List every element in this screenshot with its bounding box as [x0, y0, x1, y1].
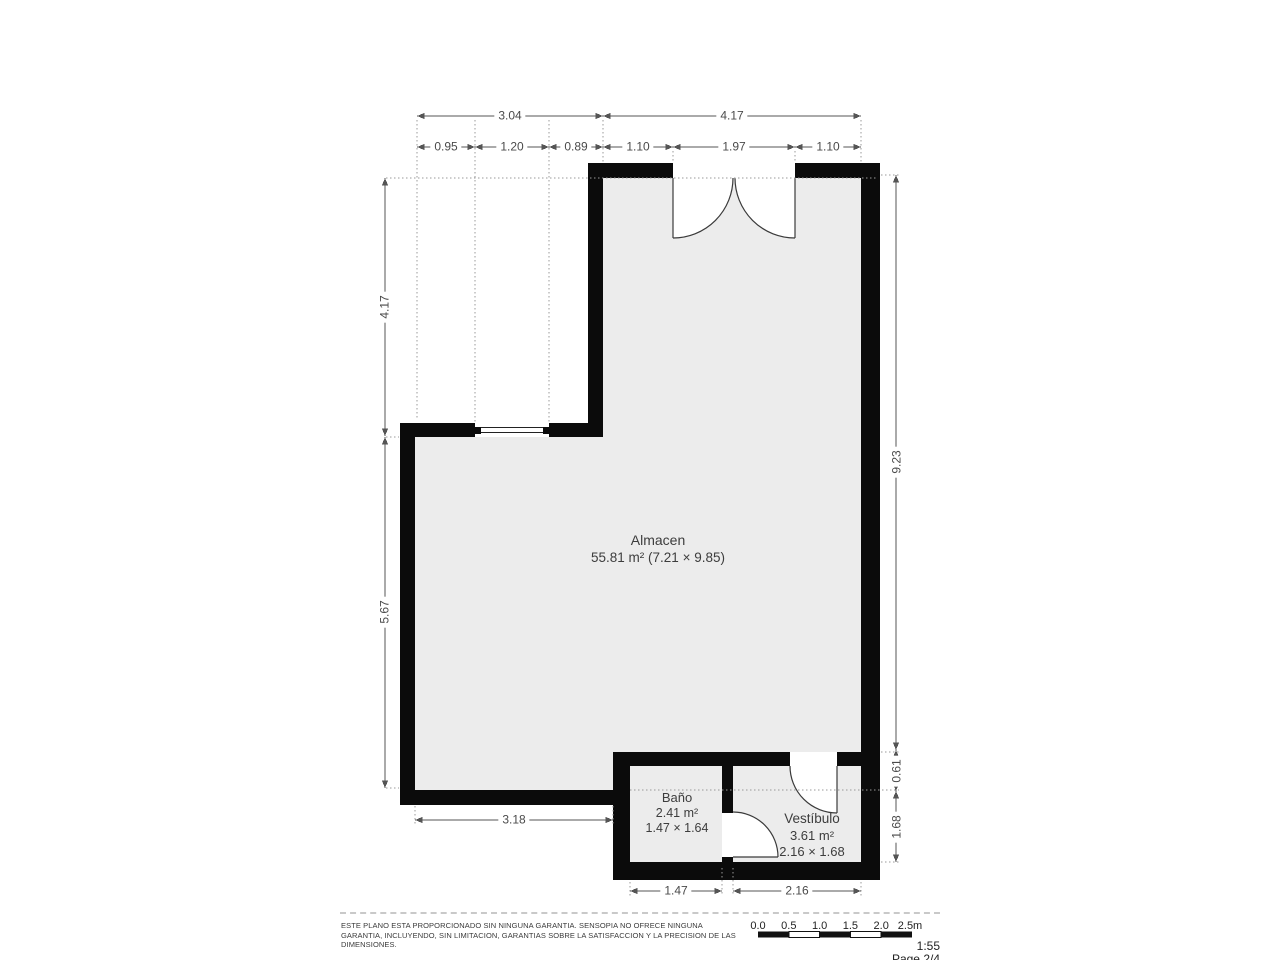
room-details: 55.81 m² (7.21 × 9.85) [591, 549, 725, 566]
dim-label-bottom-318: 3.18 [498, 814, 529, 827]
room-area: 3.61 m² [779, 828, 844, 845]
dim-label-right-061: 0.61 [891, 755, 904, 786]
disclaimer-line: GARANTIA, INCLUYENDO, SIN LIMITACION, GA… [341, 931, 741, 941]
room-label-almacen: Almacen 55.81 m² (7.21 × 9.85) [591, 532, 725, 566]
room-label-bano: Baño 2.41 m² 1.47 × 1.64 [646, 790, 709, 837]
room-label-vestibulo: Vestíbulo 3.61 m² 2.16 × 1.68 [779, 811, 844, 861]
dim-label-sub-095: 0.95 [430, 141, 461, 154]
window [475, 423, 549, 437]
wall-bano-left [613, 752, 630, 880]
room-size: 2.16 × 1.68 [779, 844, 844, 861]
wall-right [861, 163, 880, 880]
dim-label-right-168: 1.68 [891, 811, 904, 842]
dim-label-sub-110a: 1.10 [622, 141, 653, 154]
scale-ratio: 1:55 [917, 939, 940, 953]
dim-label-bottom-147: 1.47 [660, 885, 691, 898]
scale-tick-label: 1.5 [843, 920, 858, 932]
dim-label-bottom-216: 2.16 [781, 885, 812, 898]
disclaimer-line: DIMENSIONES. [341, 940, 741, 950]
disclaimer-line: ESTE PLANO ESTA PROPORCIONADO SIN NINGUN… [341, 921, 741, 931]
wall-left [400, 423, 415, 805]
dim-label-top-304: 3.04 [494, 110, 525, 123]
room-name: Vestíbulo [779, 811, 844, 828]
dim-label-sub-089: 0.89 [560, 141, 591, 154]
wall-section-top-b [837, 752, 861, 766]
dim-label-sub-110b: 1.10 [812, 141, 843, 154]
dim-label-right-923: 9.23 [891, 446, 904, 477]
room-name: Baño [646, 790, 709, 806]
wall-section-top-a [613, 752, 790, 766]
floorplan-page: 3.04 4.17 0.95 1.20 0.89 1.10 1.97 1.10 … [0, 0, 1280, 960]
disclaimer-text: ESTE PLANO ESTA PROPORCIONADO SIN NINGUN… [341, 921, 741, 950]
room-size: 1.47 × 1.64 [646, 821, 709, 837]
wall-section-bottom [613, 862, 880, 880]
scale-tick-label: 2.5m [898, 920, 922, 932]
page-indicator: Page 2/4 [892, 952, 940, 960]
dim-label-sub-197: 1.97 [718, 141, 749, 154]
wall-bano-vestibulo-stub [722, 857, 733, 862]
dim-label-left-417: 4.17 [379, 291, 392, 322]
footer-divider [340, 912, 940, 914]
wall-upper-left [588, 163, 603, 437]
room-area: 2.41 m² [646, 806, 709, 822]
dim-label-left-567: 5.67 [379, 596, 392, 627]
scale-tick-label: 2.0 [874, 920, 889, 932]
room-name: Almacen [591, 532, 725, 549]
dim-label-top-417: 4.17 [716, 110, 747, 123]
wall-bottom-left [400, 790, 630, 805]
scale-tick-label: 1.0 [812, 920, 827, 932]
scale-tick-label: 0.0 [750, 920, 765, 932]
scale-tick-label: 0.5 [781, 920, 796, 932]
dim-label-sub-120: 1.20 [496, 141, 527, 154]
